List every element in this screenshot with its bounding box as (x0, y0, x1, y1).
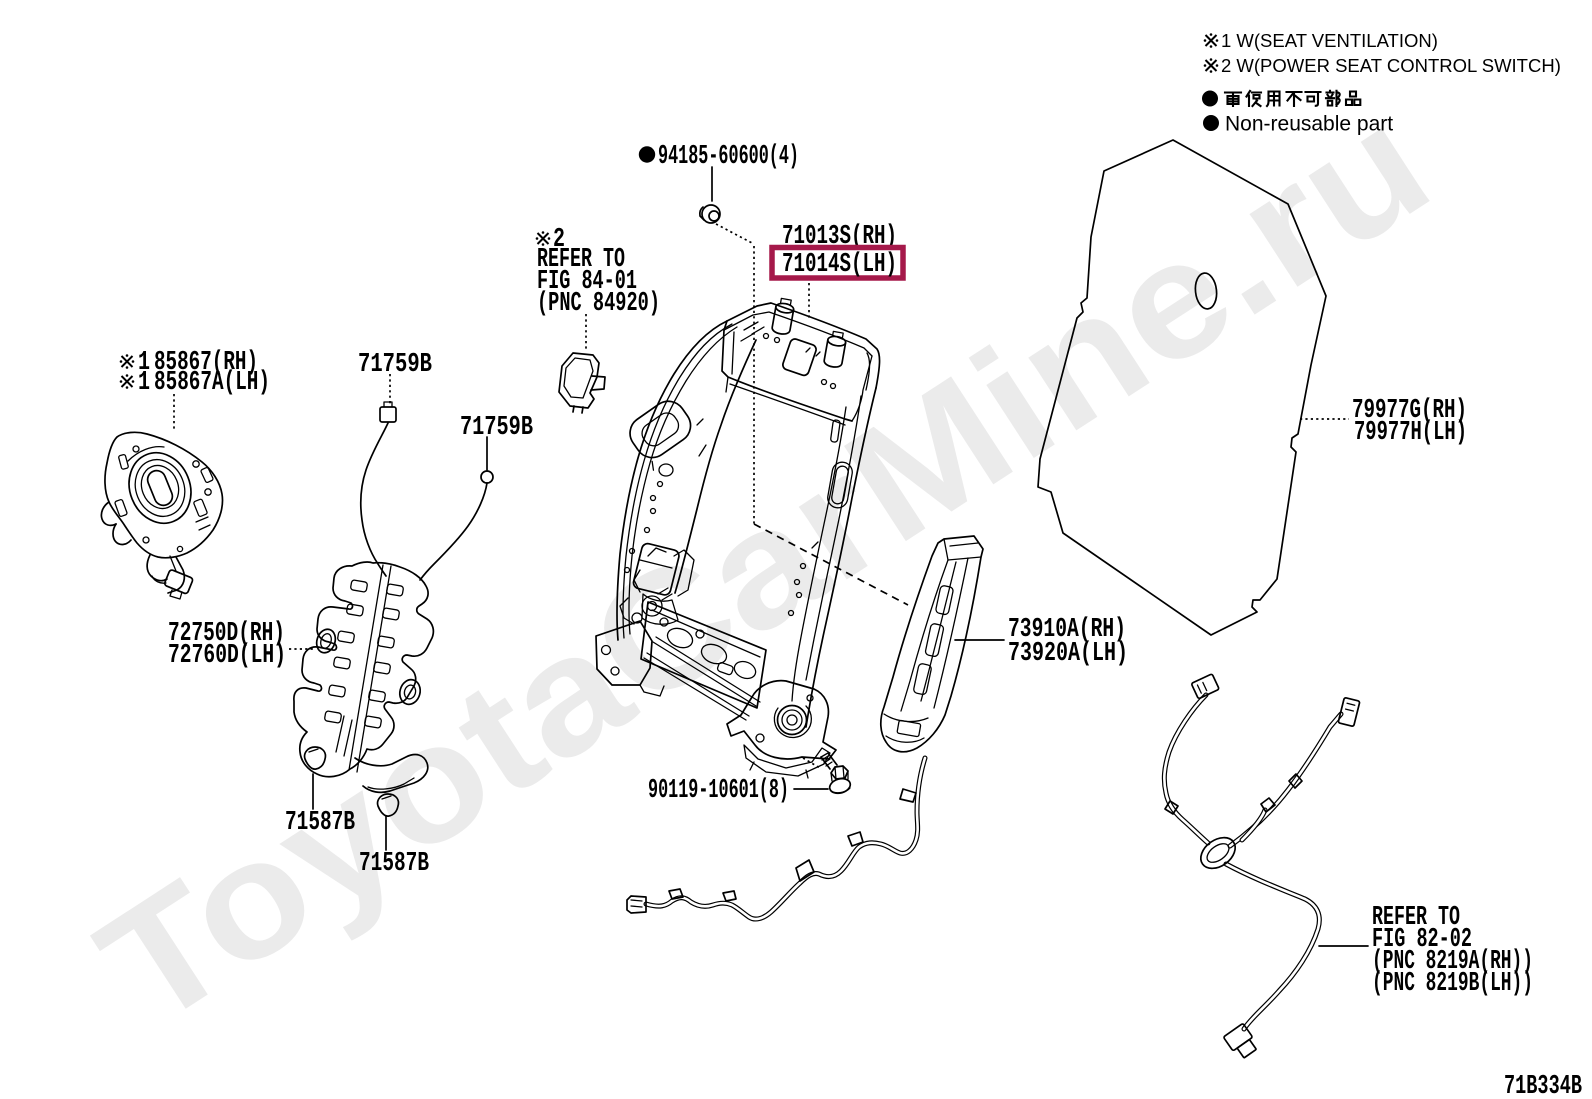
svg-text:71B334B: 71B334B (1504, 1072, 1582, 1099)
svg-text:71587B: 71587B (285, 808, 355, 838)
svg-text:Non-reusable part: Non-reusable part (1225, 113, 1393, 136)
svg-text:73920A(LH): 73920A(LH) (1008, 639, 1128, 669)
svg-text:2 W(POWER SEAT CONTROL SWITCH: 2 W(POWER SEAT CONTROL SWITCH) (1221, 55, 1561, 76)
svg-text:71587B: 71587B (359, 849, 429, 879)
svg-text:72760D(LH): 72760D(LH) (168, 641, 286, 671)
svg-text:71759B: 71759B (358, 350, 432, 380)
svg-text:85867A(LH): 85867A(LH) (154, 368, 270, 398)
svg-text:94185-60600(4): 94185-60600(4) (658, 142, 799, 172)
svg-text:(PNC 84920): (PNC 84920) (537, 289, 660, 319)
svg-text:71759B: 71759B (460, 413, 533, 443)
svg-text:1: 1 (138, 368, 150, 398)
svg-text:71014S(LH): 71014S(LH) (782, 250, 897, 280)
svg-text:1 W(SEAT VENTILATION): 1 W(SEAT VENTILATION) (1221, 30, 1438, 51)
svg-text:90119-10601(8): 90119-10601(8) (648, 776, 789, 806)
svg-text:79977H(LH): 79977H(LH) (1354, 418, 1467, 448)
svg-text:(PNC 8219B(LH)): (PNC 8219B(LH)) (1372, 969, 1533, 999)
